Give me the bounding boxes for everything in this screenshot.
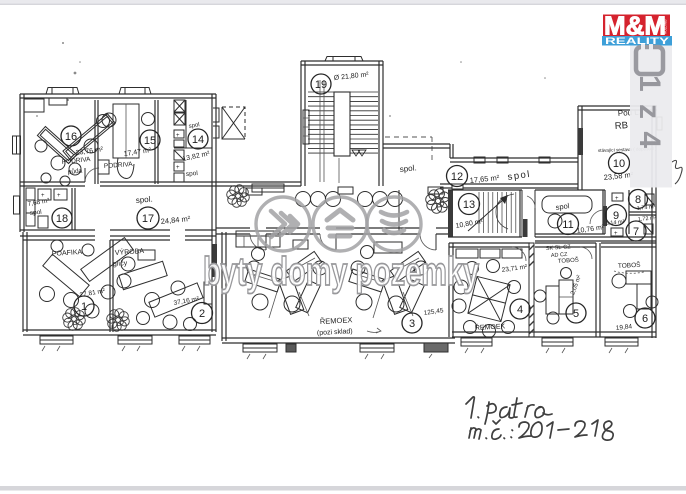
svg-text:spol.: spol. — [135, 195, 153, 205]
svg-text:+: + — [615, 196, 619, 202]
svg-text:TOBOŠ: TOBOŠ — [558, 257, 579, 265]
svg-text:+: + — [614, 231, 618, 237]
svg-text:14: 14 — [192, 134, 204, 146]
svg-text:19: 19 — [315, 79, 327, 91]
svg-text:12: 12 — [451, 171, 463, 183]
svg-text:půda: půda — [67, 166, 83, 176]
svg-text:15: 15 — [144, 135, 156, 147]
svg-text:glíčy: glíčy — [113, 260, 128, 268]
svg-text:1: 1 — [81, 301, 87, 313]
svg-text:+: + — [176, 133, 180, 139]
svg-text:+: + — [57, 193, 61, 199]
svg-text:6: 6 — [642, 313, 648, 325]
svg-text:spol: spol — [29, 209, 42, 217]
svg-text:17: 17 — [142, 213, 154, 225]
svg-text:HOLDING: HOLDING — [664, 19, 668, 34]
svg-text:byty domy pozemky: byty domy pozemky — [203, 250, 480, 294]
svg-text:+: + — [176, 165, 180, 171]
svg-text:5: 5 — [573, 308, 579, 320]
svg-text:13: 13 — [463, 199, 475, 211]
svg-text:16: 16 — [65, 131, 77, 143]
svg-text:spol.: spol. — [399, 163, 417, 174]
svg-text:8: 8 — [635, 194, 641, 206]
svg-text:3: 3 — [409, 318, 415, 330]
svg-text:ŘEMOEX: ŘEMOEX — [320, 315, 353, 326]
svg-text:2: 2 — [199, 308, 205, 320]
svg-text:10: 10 — [613, 158, 625, 170]
svg-text:11: 11 — [562, 219, 573, 231]
svg-text:1 z 4: 1 z 4 — [633, 75, 666, 150]
svg-text:spol: spol — [186, 170, 199, 178]
svg-text:RB: RB — [614, 120, 628, 132]
svg-text:18: 18 — [56, 213, 68, 225]
svg-text:4: 4 — [517, 304, 523, 316]
svg-text:7: 7 — [633, 226, 639, 238]
